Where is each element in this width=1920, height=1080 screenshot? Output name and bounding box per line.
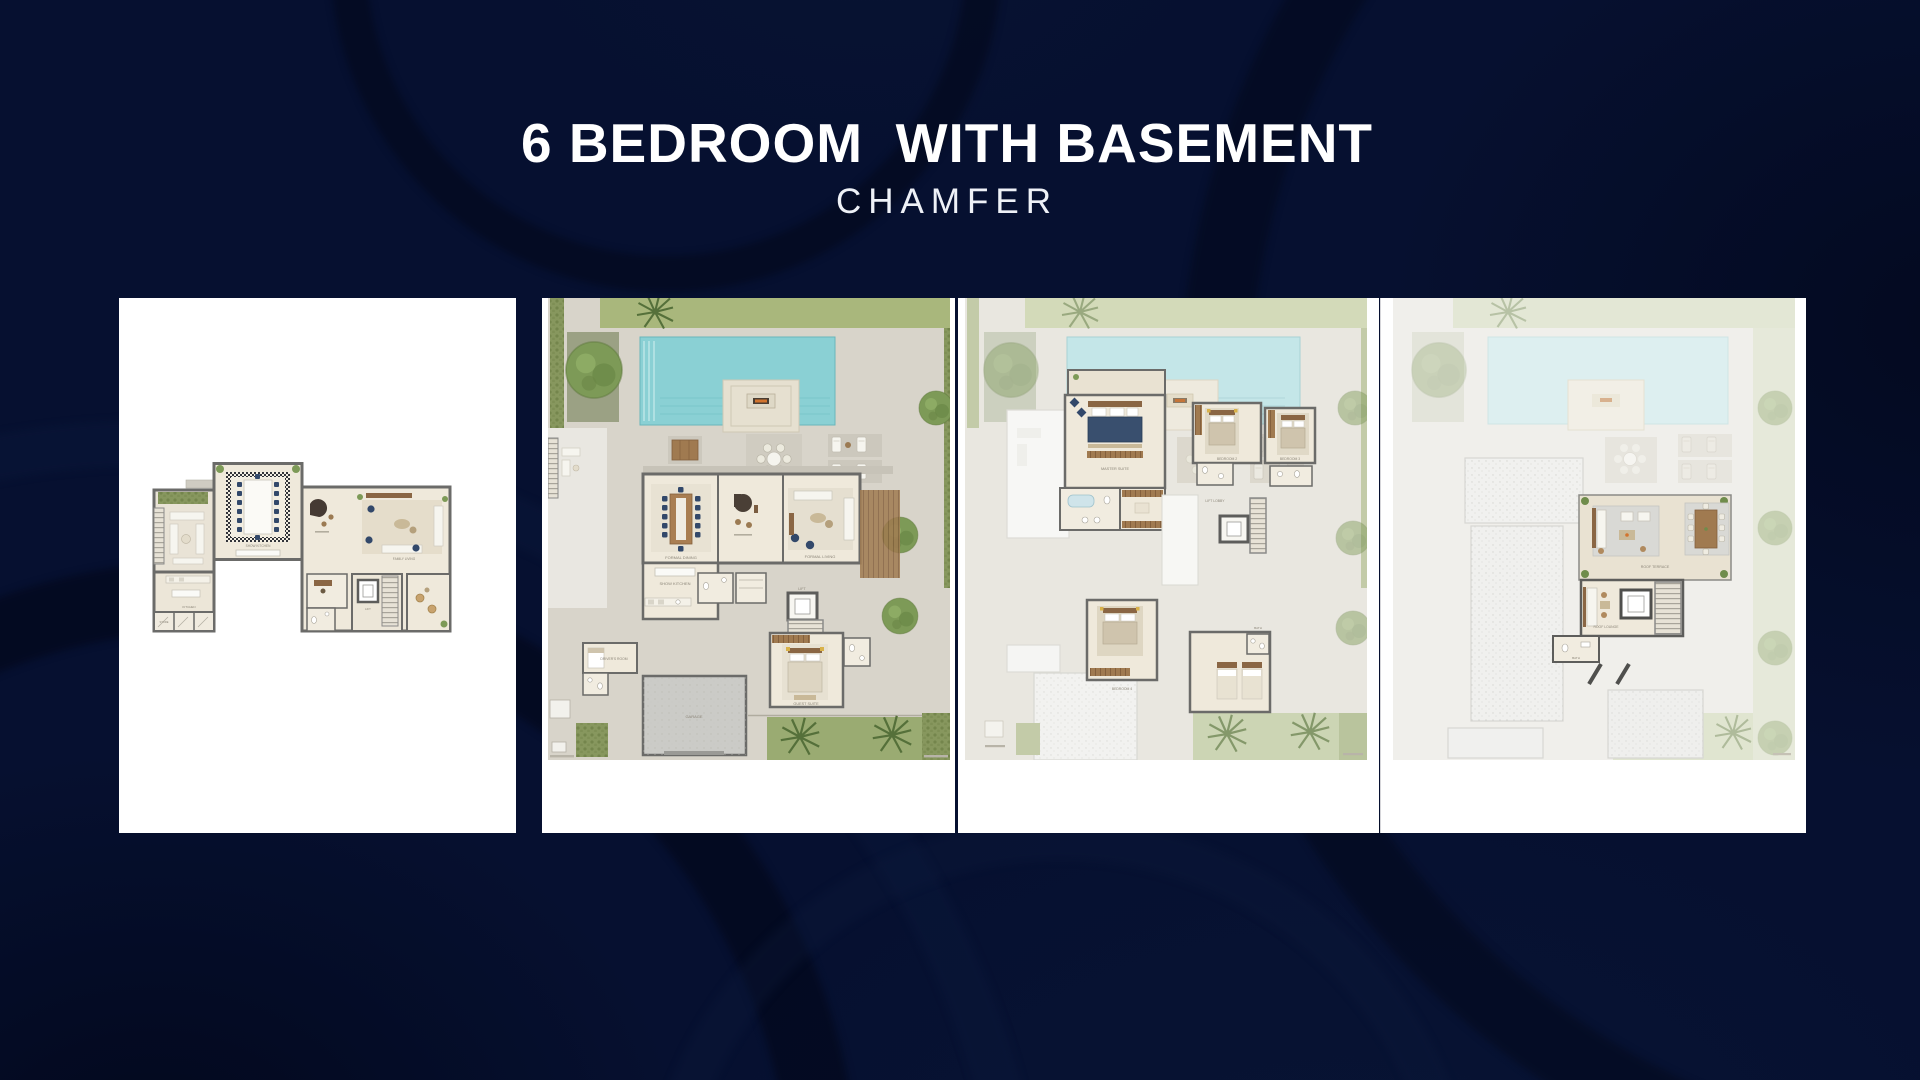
page-title: 6 BEDROOM WITH BASEMENT — [0, 112, 1894, 174]
fine-print — [1343, 753, 1363, 755]
fine-print — [550, 755, 574, 757]
fire-pit — [755, 400, 767, 403]
panel-first-floor-plan: MASTER SUITE BEDROOM 2 — [958, 298, 1379, 833]
room-label: MASTER SUITE — [1101, 467, 1130, 471]
room-label: GARAGE — [685, 714, 702, 719]
room-label: DRIVER'S ROOM — [600, 657, 627, 661]
page-subtitle: CHAMFER — [0, 182, 1894, 222]
panel-roof-plan: ROOF TERRACE ROOF LOUNGE BATH — [1380, 298, 1806, 833]
balcony — [1068, 370, 1165, 395]
lift — [358, 580, 378, 602]
fine-print — [985, 745, 1005, 747]
formal-living: FORMAL LIVING — [788, 488, 854, 559]
basement-kitchen-stores: KITCHEN STORE — [154, 572, 214, 631]
lift — [1621, 590, 1651, 618]
stairs — [382, 576, 398, 626]
double-height-void — [1162, 495, 1198, 585]
panel-ground-floor-plan: FORMAL DINING FORMAL LIVING — [542, 298, 955, 833]
room-label: STORE — [160, 620, 169, 624]
garage: GARAGE — [643, 676, 746, 755]
header: 6 BEDROOM WITH BASEMENT CHAMFER — [0, 112, 1894, 222]
background-swirl-decoration — [640, 820, 1480, 1080]
formal-dining: FORMAL DINING — [651, 484, 711, 560]
pool — [640, 337, 835, 432]
basement-floorplan: SHOW KITCHEN KITCHEN — [152, 462, 452, 638]
brochure-page: 6 BEDROOM WITH BASEMENT CHAMFER — [0, 0, 1920, 1080]
roof-terrace: ROOF TERRACE — [1579, 495, 1731, 580]
roof-lounge: ROOF LOUNGE — [1581, 580, 1683, 636]
room-label: LIFT — [365, 607, 371, 611]
room-label: SHOW KITCHEN — [659, 581, 690, 586]
stairs — [1655, 582, 1681, 634]
room-label: GUEST SUITE — [793, 702, 819, 706]
room-label: BATH — [1572, 656, 1580, 660]
room-label: FORMAL DINING — [665, 555, 697, 560]
ground-floorplan: FORMAL DINING FORMAL LIVING — [548, 298, 950, 760]
room-label: BEDROOM 3 — [1280, 457, 1300, 461]
room-label: SHOW KITCHEN — [246, 544, 271, 548]
roof-floorplan: ROOF TERRACE ROOF LOUNGE BATH — [1393, 298, 1795, 760]
master-bath — [1060, 488, 1120, 530]
room-label: KITCHEN — [182, 605, 195, 609]
room-label: BATH — [1254, 626, 1262, 630]
stairs — [1250, 498, 1266, 553]
room-label: LIFT LOBBY — [1205, 499, 1225, 503]
first-floorplan: MASTER SUITE BEDROOM 2 — [965, 298, 1367, 760]
room-label: ROOF LOUNGE — [1593, 625, 1619, 629]
room-label: BEDROOM 4 — [1112, 687, 1132, 691]
basement-left-lounge — [154, 490, 214, 572]
room-label: BEDROOM 2 — [1217, 457, 1237, 461]
room-label: FORMAL LIVING — [805, 554, 836, 559]
room-label: ROOF TERRACE — [1641, 565, 1670, 569]
basement-core: LIFT — [307, 574, 450, 631]
room-label: FAMILY LIVING — [393, 557, 416, 561]
panel-basement-plan: SHOW KITCHEN KITCHEN — [119, 298, 516, 833]
master-bed — [1088, 417, 1142, 442]
fine-print — [924, 755, 948, 757]
house-ground: FORMAL DINING FORMAL LIVING — [643, 466, 893, 563]
fine-print — [1773, 753, 1791, 755]
room-label: LIFT — [798, 587, 806, 591]
